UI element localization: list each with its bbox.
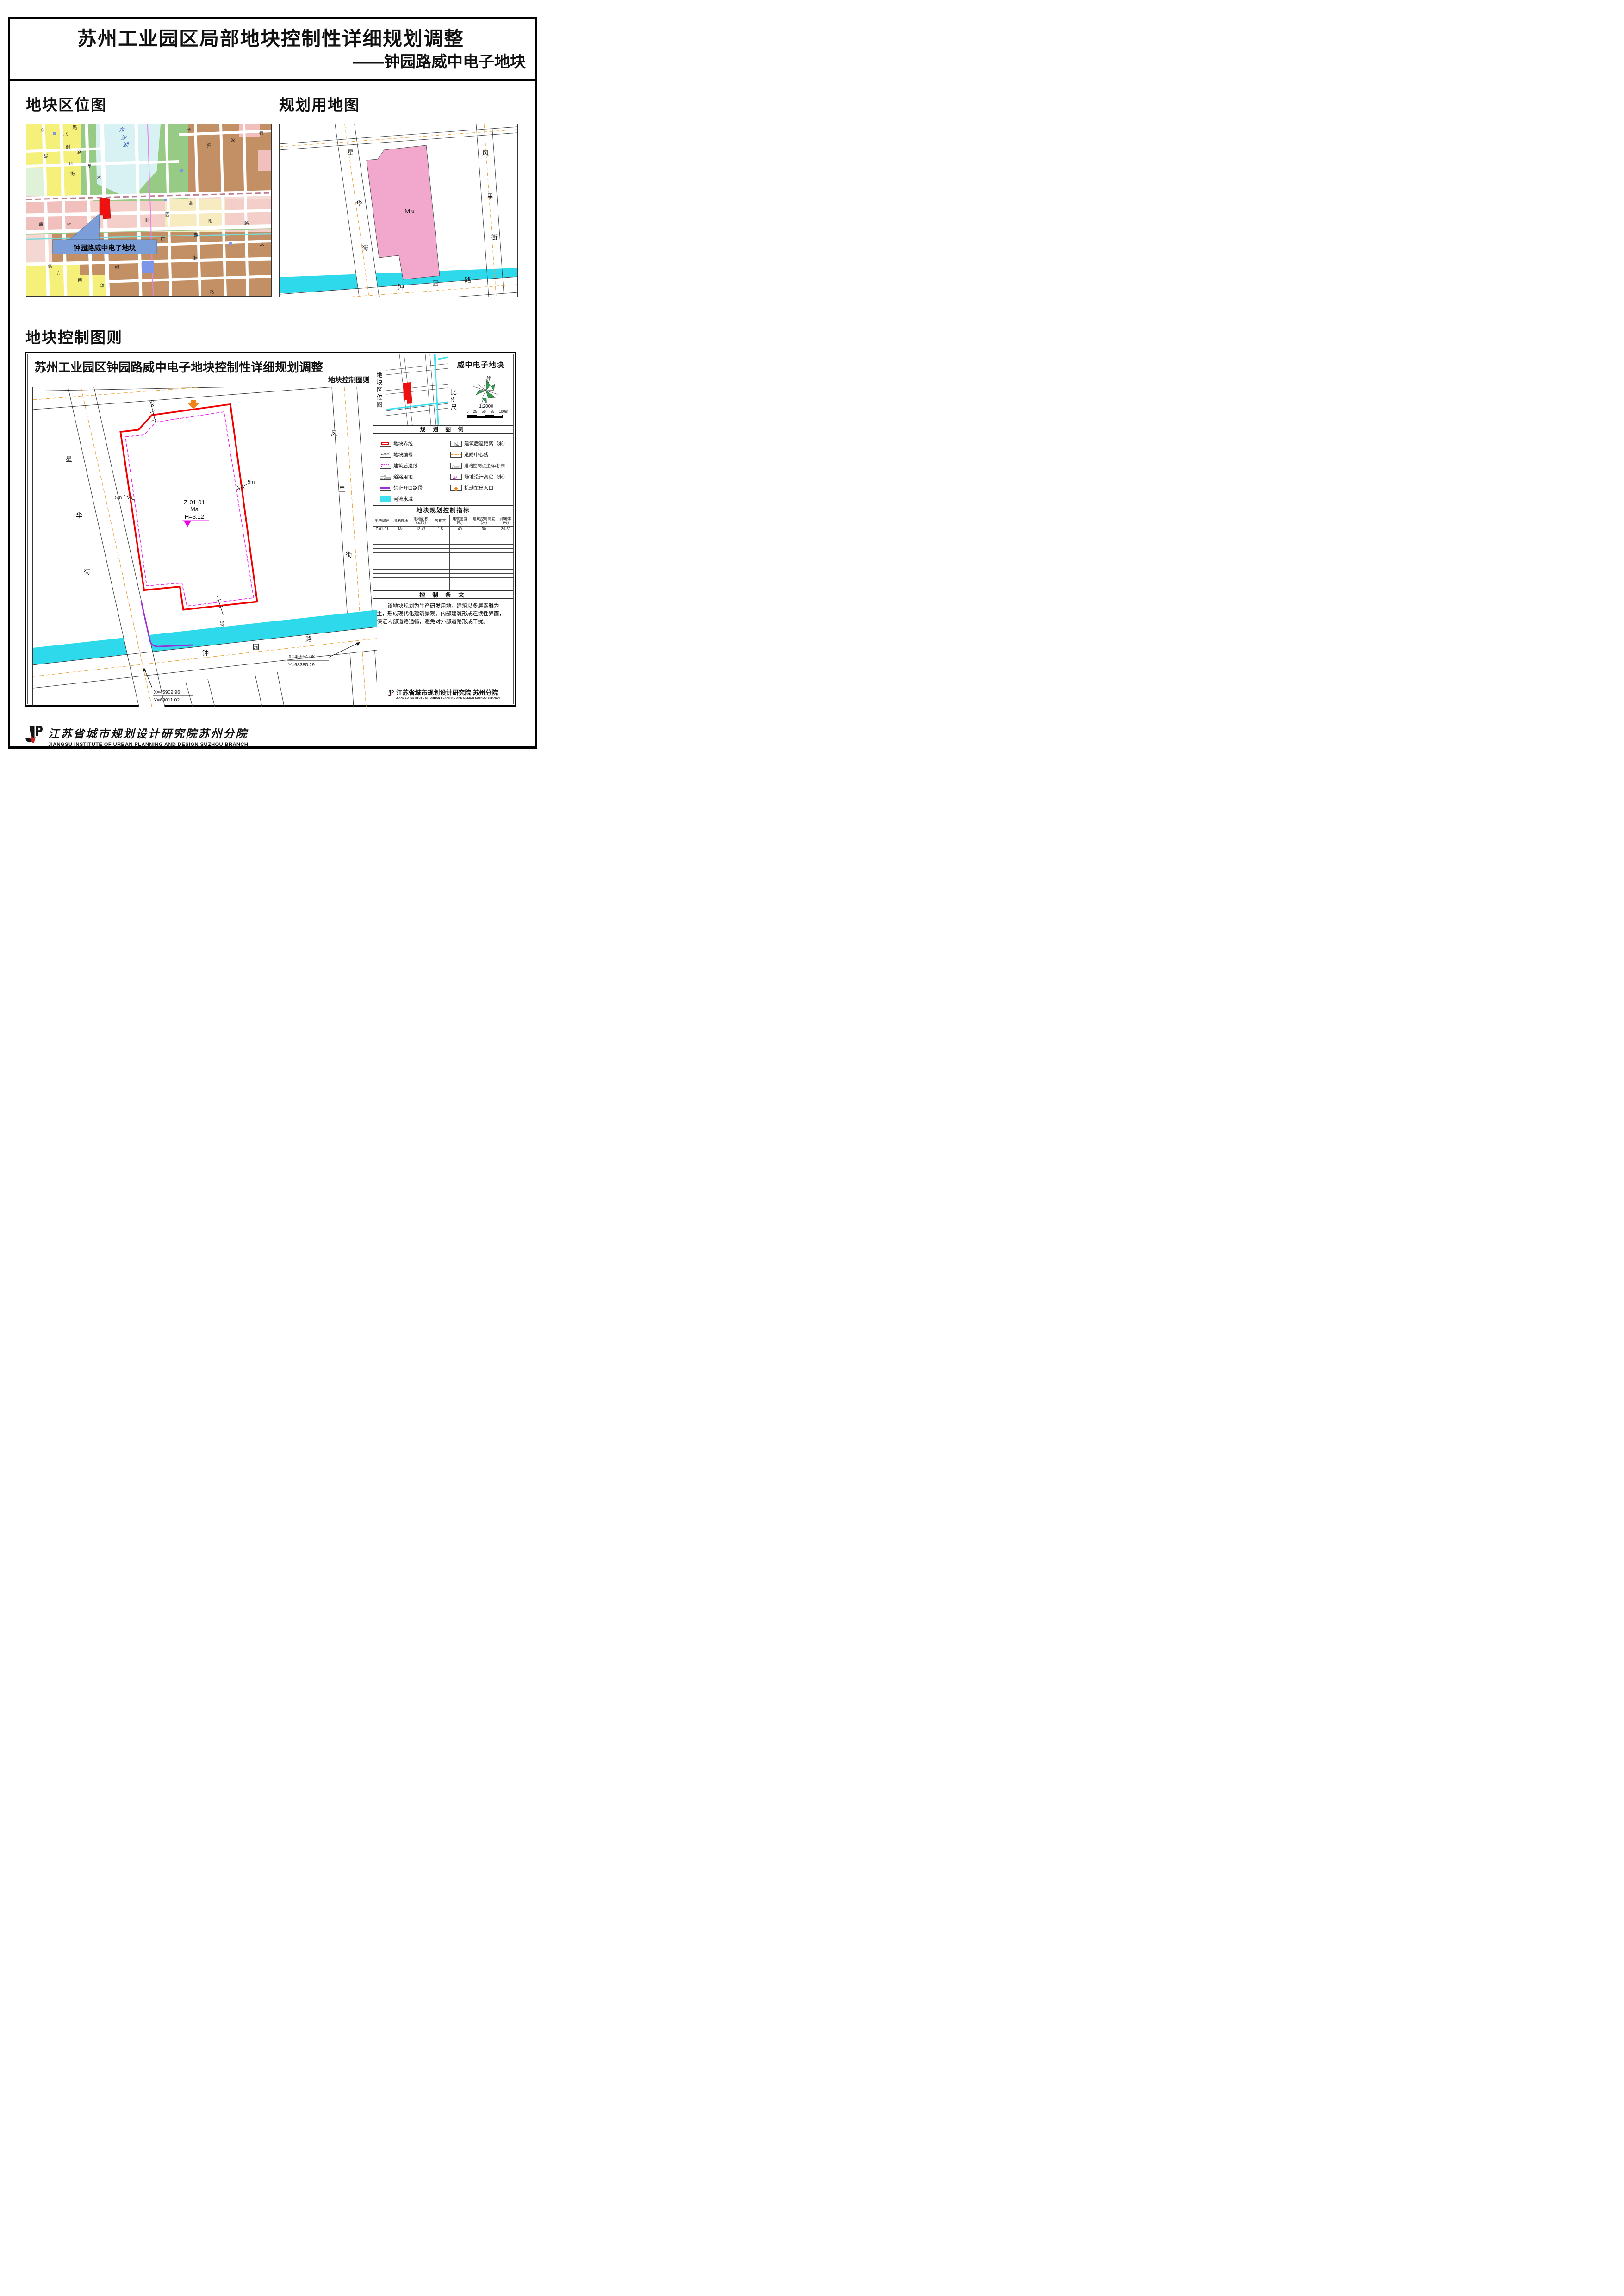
- legend-item-plot-number: A-01-01 地块编号: [380, 449, 423, 460]
- svg-text:洲: 洲: [115, 265, 119, 270]
- control-right-panel: 地块区位图: [373, 354, 513, 704]
- empty-row: [373, 582, 514, 586]
- svg-text:大: 大: [97, 174, 101, 180]
- indicators-table: 地块编码 用地性质 用地面积(公顷) 容积率 建筑密度(%) 建筑控制高度(米)…: [373, 515, 514, 590]
- svg-text:Z-01-01: Z-01-01: [184, 499, 205, 506]
- elevation-triangle-icon: [184, 521, 191, 527]
- plot-ma-label: Ma: [404, 207, 414, 215]
- svg-text:方: 方: [56, 271, 61, 276]
- setback-line: [125, 412, 254, 606]
- svg-text:5: 5: [455, 443, 457, 446]
- institute-stamp: 江苏省城市规划设计研究院 苏州分院 JIANGSU INSTITUTE OF U…: [373, 683, 513, 704]
- svg-text:华: 华: [76, 512, 82, 519]
- empty-row: [373, 561, 514, 565]
- svg-text:家: 家: [231, 137, 236, 143]
- svg-text:湖: 湖: [44, 154, 49, 159]
- control-chart: 苏州工业园区钟园路威中电子地块控制性详细规划调整 地块控制图则: [25, 352, 516, 707]
- svg-text:锦: 锦: [38, 222, 43, 227]
- svg-text:Y=68011.02: Y=68011.02: [154, 697, 180, 703]
- svg-text:路: 路: [244, 221, 249, 226]
- setback-line-icon: [380, 463, 391, 469]
- svg-text:雨: 雨: [69, 161, 74, 166]
- svg-text:H=3.12: H=3.12: [185, 513, 204, 520]
- plot-number-icon: A-01-01: [380, 452, 391, 458]
- svg-text:钟: 钟: [398, 283, 404, 291]
- plot-label: Z-01-01 Ma H=3.12: [184, 499, 205, 520]
- scale-strip: 比例尺: [448, 374, 460, 425]
- stamp-name-cn: 江苏省城市规划设计研究院 苏州分院: [396, 688, 500, 697]
- location-map: 钟园路威中电子地块 东路 北谢 湖路 雨街 星大 道长 归家 巷锦 钟里 园阳 …: [26, 124, 272, 297]
- svg-text:街: 街: [362, 244, 368, 252]
- river-icon: [380, 496, 391, 502]
- footer-name-cn: 江苏省城市规划设计研究院苏州分院: [48, 725, 248, 741]
- empty-row: [373, 553, 514, 557]
- page-subtitle: ——钟园路威中电子地块: [353, 49, 526, 72]
- svg-text:星: 星: [347, 149, 354, 156]
- scale-ratio: 1:2000: [460, 404, 512, 409]
- empty-row: [373, 536, 514, 540]
- svg-text:路: 路: [194, 233, 199, 238]
- legend-item-vehicle-entrance: 机动车出入口: [450, 482, 508, 493]
- svg-text:街: 街: [491, 234, 498, 241]
- vehicle-entrance-icon: [450, 485, 462, 491]
- svg-text:归: 归: [207, 143, 212, 149]
- svg-text:5m: 5m: [148, 399, 156, 408]
- road-centerline-icon: [450, 452, 462, 458]
- svg-text:南: 南: [78, 277, 82, 283]
- no-opening-icon: [380, 485, 391, 491]
- north-label: N: [487, 375, 490, 380]
- page-footer: 江苏省城市规划设计研究院苏州分院 JIANGSU INSTITUTE OF UR…: [21, 725, 248, 747]
- mini-map-strip: 地块区位图: [373, 354, 386, 425]
- svg-text:X=45954.08: X=45954.08: [288, 654, 315, 659]
- scale-label: 比例尺: [450, 389, 457, 411]
- svg-text:沙: 沙: [121, 134, 127, 141]
- mini-location-map: [386, 354, 448, 425]
- page-title: 苏州工业园区局部地块控制性详细规划调整: [0, 23, 541, 51]
- footer-name-en: JIANGSU INSTITUTE OF URBAN PLANNING AND …: [48, 742, 248, 747]
- legend-item-road-centerline: 道路中心线: [450, 449, 508, 460]
- svg-text:路: 路: [73, 125, 77, 130]
- svg-text:5m: 5m: [248, 479, 255, 485]
- legend-item-site-elevation: H=3.0 场地设计高程（米）: [450, 471, 508, 482]
- empty-row: [373, 565, 514, 570]
- empty-row: [373, 545, 514, 549]
- scale-tick-labels: 0255075100m: [467, 410, 508, 414]
- svg-text:路: 路: [465, 276, 471, 284]
- svg-text:湖: 湖: [123, 142, 129, 148]
- empty-row: [373, 574, 514, 578]
- site-elevation-icon: H=3.0: [450, 474, 462, 480]
- svg-text:里: 里: [144, 218, 149, 223]
- control-chart-inner-border: 苏州工业园区钟园路威中电子地块控制性详细规划调整 地块控制图则: [27, 354, 514, 704]
- legend-item-plot-boundary: 地块界线: [380, 438, 423, 449]
- svg-text:华: 华: [100, 283, 105, 289]
- control-chart-title: 苏州工业园区钟园路威中电子地块控制性详细规划调整: [34, 358, 323, 375]
- svg-text:街: 街: [70, 171, 75, 177]
- svg-text:北: 北: [63, 132, 68, 137]
- indicators-table-header-row: 地块编码 用地性质 用地面积(公顷) 容积率 建筑密度(%) 建筑控制高度(米)…: [373, 515, 514, 527]
- legend-header: 规 划 图 例: [373, 426, 513, 434]
- callout-label: 钟园路威中电子地块: [73, 244, 136, 252]
- setback-distance-icon: 5: [450, 441, 462, 447]
- svg-text:钟: 钟: [67, 222, 72, 228]
- indicators-header: 地块规划控制指标: [373, 506, 513, 515]
- empty-row: [373, 586, 514, 590]
- legend-item-road-land: 道路用地: [380, 471, 423, 482]
- svg-text:X=45909.96: X=45909.96: [154, 689, 180, 695]
- footer-logo-icon: [21, 725, 43, 745]
- location-map-svg: 钟园路威中电子地块 东路 北谢 湖路 雨街 星大 道长 归家 巷锦 钟里 园阳 …: [26, 124, 271, 296]
- east-street-centerline: [344, 387, 366, 707]
- svg-text:钟: 钟: [202, 649, 209, 657]
- mini-map-label: 地块区位图: [376, 372, 383, 409]
- svg-text:东: 东: [119, 127, 125, 133]
- scale-bar: [467, 415, 503, 418]
- indicators-data-row: Z-01-01Ma 13.471.5 4030 30-50: [373, 527, 514, 532]
- landuse-map: Ma 星 华 街 风 里 街 钟 园 路: [279, 124, 518, 297]
- svg-text:园: 园: [432, 280, 439, 287]
- svg-text:星: 星: [66, 455, 72, 463]
- stamp-name-en: JIANGSU INSTITUTE OF URBAN PLANNING AND …: [396, 697, 500, 700]
- clauses-text: 该地块规划为生产研发用地，建筑以多层素雅为主，形成现代化建筑景观。内部建筑形成连…: [377, 602, 510, 626]
- control-drawing: 5m 5m 5m 5m Z-01-01 Ma H=3.12 星 华 街 风 里 …: [32, 387, 376, 706]
- svg-text:道: 道: [188, 201, 193, 206]
- svg-text:路: 路: [305, 635, 312, 643]
- svg-text:里: 里: [487, 193, 493, 200]
- svg-text:龙: 龙: [260, 242, 264, 247]
- svg-text:H=3.0: H=3.0: [452, 476, 458, 478]
- svg-text:路: 路: [210, 289, 214, 295]
- svg-text:溪: 溪: [48, 263, 52, 269]
- institute-logo-icon: [386, 690, 394, 697]
- legend-body: 地块界线 A-01-01 地块编号 建筑后退线 道路用地: [373, 434, 513, 506]
- svg-text:风: 风: [482, 149, 489, 157]
- svg-text:街: 街: [193, 255, 197, 261]
- svg-text:5m: 5m: [218, 620, 225, 628]
- control-chart-subtitle: 地块控制图则: [328, 375, 370, 385]
- svg-text:街: 街: [346, 551, 352, 558]
- plot-boundary-icon: [380, 441, 391, 447]
- mini-map-svg: [386, 354, 448, 425]
- svg-text:谢: 谢: [66, 144, 70, 150]
- title-separator: [8, 79, 537, 81]
- svg-text:5m: 5m: [115, 495, 122, 501]
- plot-title: 威中电子地块: [448, 354, 513, 374]
- coordinate-callout-east: X=45954.08 Y=68385.29: [288, 654, 315, 668]
- svg-text:星: 星: [87, 164, 92, 169]
- landuse-map-svg: Ma 星 华 街 风 里 街 钟 园 路: [280, 124, 517, 297]
- section-heading-location-map: 地块区位图: [26, 93, 107, 115]
- section-heading-landuse-map: 规划用地图: [279, 93, 360, 115]
- svg-text:长: 长: [187, 127, 192, 133]
- empty-row: [373, 540, 514, 545]
- empty-row: [373, 578, 514, 582]
- clauses-text-area: 该地块规划为生产研发用地，建筑以多层素雅为主，形成现代化建筑景观。内部建筑形成连…: [373, 599, 513, 683]
- legend-item-no-opening: 禁止开口路段: [380, 482, 423, 493]
- empty-row: [373, 549, 514, 553]
- empty-row: [373, 532, 514, 536]
- clauses-header: 控 制 条 文: [373, 590, 513, 599]
- svg-text:巷: 巷: [259, 131, 264, 136]
- legend-item-control-point: 道路控制点坐标/标高: [450, 460, 508, 471]
- svg-text:Y=68385.29: Y=68385.29: [288, 662, 315, 668]
- entrance-arrow-icon: [188, 400, 199, 409]
- empty-row: [373, 557, 514, 561]
- road-land-icon: [380, 474, 391, 480]
- control-point-icon: [450, 463, 462, 469]
- compass-area: N 1:2000 0255075100m: [460, 374, 513, 425]
- legend-item-river: 河流水域: [380, 493, 423, 504]
- svg-text:路: 路: [77, 149, 82, 155]
- svg-text:Ma: Ma: [190, 506, 199, 513]
- svg-text:庄: 庄: [161, 236, 165, 242]
- compass-rose-icon: N: [463, 375, 509, 404]
- legend-item-setback-line: 建筑后退线: [380, 460, 423, 471]
- east-street-edges: [332, 387, 377, 707]
- svg-text:风: 风: [331, 430, 337, 437]
- legend-item-setback-distance: 5 建筑后退距离（米）: [450, 438, 508, 449]
- svg-text:园: 园: [253, 643, 259, 651]
- svg-text:园: 园: [165, 212, 170, 217]
- svg-text:华: 华: [356, 200, 362, 207]
- svg-text:里: 里: [339, 485, 345, 493]
- svg-text:东: 东: [40, 128, 45, 133]
- svg-text:街: 街: [84, 568, 90, 576]
- section-heading-control-chart: 地块控制图则: [25, 325, 123, 348]
- svg-text:阳: 阳: [208, 219, 213, 224]
- control-drawing-svg: 5m 5m 5m 5m Z-01-01 Ma H=3.12 星 华 街 风 里 …: [33, 387, 377, 707]
- empty-row: [373, 570, 514, 574]
